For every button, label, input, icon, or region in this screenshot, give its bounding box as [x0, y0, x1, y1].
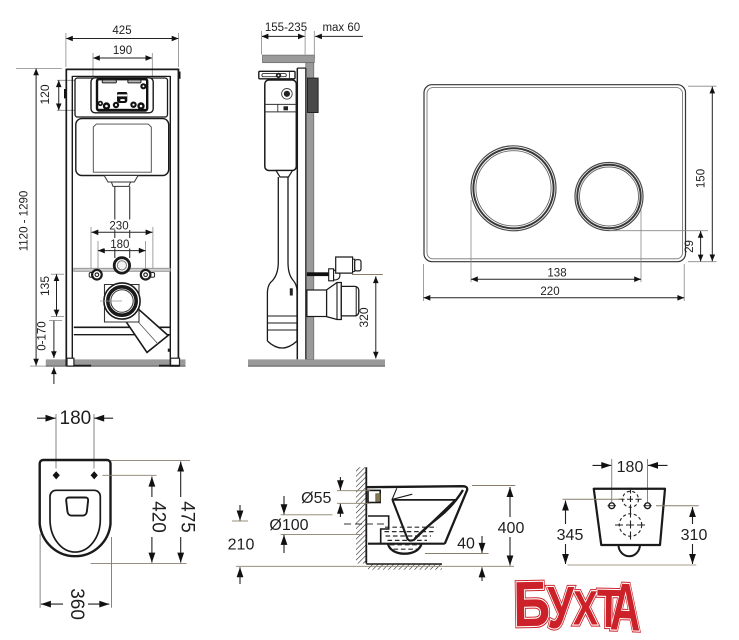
svg-text:320: 320 — [357, 307, 371, 327]
svg-text:210: 210 — [228, 537, 255, 554]
svg-text:Б: Б — [513, 569, 551, 640]
svg-text:max 60: max 60 — [322, 22, 360, 34]
svg-text:230: 230 — [109, 221, 128, 233]
svg-text:138: 138 — [547, 268, 566, 280]
svg-text:Х: Х — [573, 582, 598, 636]
svg-text:425: 425 — [112, 25, 131, 37]
svg-text:220: 220 — [540, 286, 559, 298]
svg-text:120: 120 — [38, 84, 52, 104]
svg-text:475: 475 — [176, 501, 197, 533]
svg-text:190: 190 — [113, 45, 132, 57]
svg-text:155-235: 155-235 — [265, 22, 307, 34]
svg-text:345: 345 — [557, 527, 584, 544]
svg-text:135: 135 — [38, 276, 52, 296]
svg-text:180: 180 — [60, 408, 92, 429]
svg-text:А: А — [610, 568, 642, 640]
svg-text:400: 400 — [498, 520, 525, 537]
svg-text:180: 180 — [110, 239, 129, 251]
svg-text:150: 150 — [696, 169, 708, 188]
svg-text:1120 - 1290: 1120 - 1290 — [19, 191, 31, 252]
svg-text:0-170: 0-170 — [37, 321, 49, 350]
svg-text:420: 420 — [148, 501, 169, 533]
svg-text:180: 180 — [617, 459, 644, 476]
svg-text:Ø100: Ø100 — [269, 517, 308, 534]
svg-text:40: 40 — [457, 536, 475, 553]
svg-text:310: 310 — [681, 527, 708, 544]
svg-text:Ø55: Ø55 — [301, 490, 331, 507]
svg-text:29: 29 — [684, 240, 696, 253]
svg-text:360: 360 — [66, 588, 87, 620]
svg-text:У: У — [547, 574, 575, 640]
